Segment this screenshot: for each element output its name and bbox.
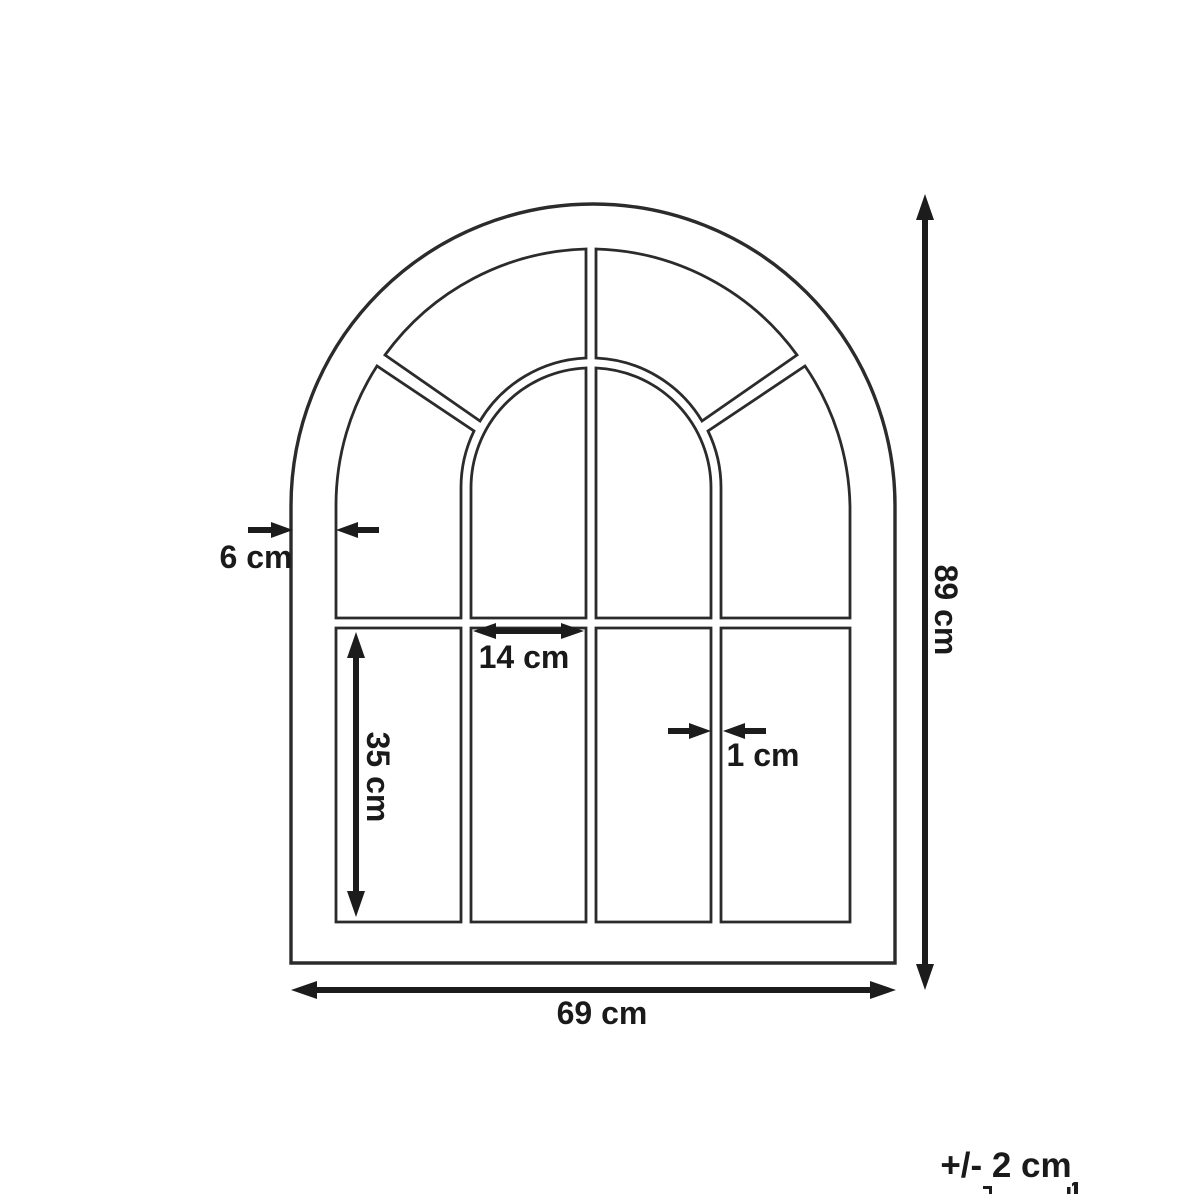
pane-height-label: 35 cm (360, 732, 396, 823)
arrowhead-left-icon (291, 981, 317, 999)
bar-thickness-label: 1 cm (727, 737, 800, 773)
arrowhead-left-icon (336, 522, 358, 538)
window-drawing (291, 204, 895, 963)
arrowhead-right-icon (689, 723, 711, 739)
arrowhead-right-icon (870, 981, 896, 999)
dimension-frame-thickness: 6 cm (220, 522, 379, 575)
dimension-diagram-canvas: 89 cm 69 cm 6 cm 14 cm (0, 0, 1200, 1200)
arrowhead-up-icon (916, 194, 934, 220)
dimension-bar-thickness: 1 cm (668, 723, 799, 773)
pane-fan-right (596, 249, 797, 421)
dimension-pane-width: 14 cm (473, 623, 584, 675)
arrowhead-down-icon (347, 891, 365, 917)
frame-thickness-label: 6 cm (220, 539, 293, 575)
pane-lower-4 (721, 628, 850, 922)
window-outer-outline (291, 204, 895, 963)
arrowhead-up-icon (347, 632, 365, 658)
overall-height-label: 89 cm (928, 565, 964, 656)
pane-lower-3 (596, 628, 711, 922)
arrowhead-right-icon (561, 623, 584, 639)
tolerance-label: +/- 2 cm (940, 1146, 1071, 1185)
pane-arch-left (471, 368, 586, 618)
pane-upper-right-side (708, 366, 850, 618)
diagram-svg: 89 cm 69 cm 6 cm 14 cm (0, 0, 1200, 1200)
cropped-glyph-mark-right (1072, 1182, 1078, 1194)
overall-width-label: 69 cm (557, 995, 648, 1031)
cropped-glyph-mark-left (983, 1186, 992, 1194)
dimension-overall-width: 69 cm (291, 981, 896, 1031)
cropped-glyph-mark-dot (1067, 1187, 1071, 1194)
pane-fan-left (385, 249, 586, 421)
arrowhead-left-icon (473, 623, 496, 639)
dimension-overall-height: 89 cm (916, 194, 964, 990)
window-panes (336, 249, 850, 922)
pane-width-label: 14 cm (479, 639, 570, 675)
arrowhead-down-icon (916, 964, 934, 990)
dimension-pane-height: 35 cm (347, 632, 396, 917)
pane-arch-right (596, 368, 711, 618)
tolerance-note: +/- 2 cm (940, 1146, 1078, 1194)
